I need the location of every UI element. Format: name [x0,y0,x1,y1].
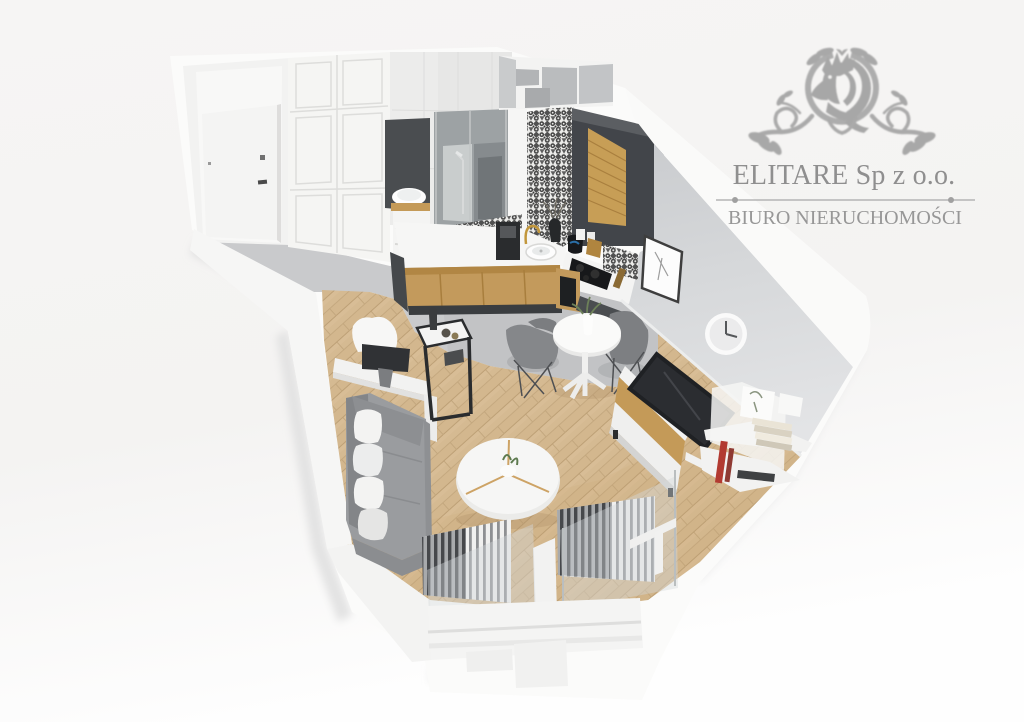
svg-text:ELITARE Sp z o.o.: ELITARE Sp z o.o. [733,160,956,191]
svg-text:BIURO NIERUCHOMOŚCI: BIURO NIERUCHOMOŚCI [728,205,962,229]
